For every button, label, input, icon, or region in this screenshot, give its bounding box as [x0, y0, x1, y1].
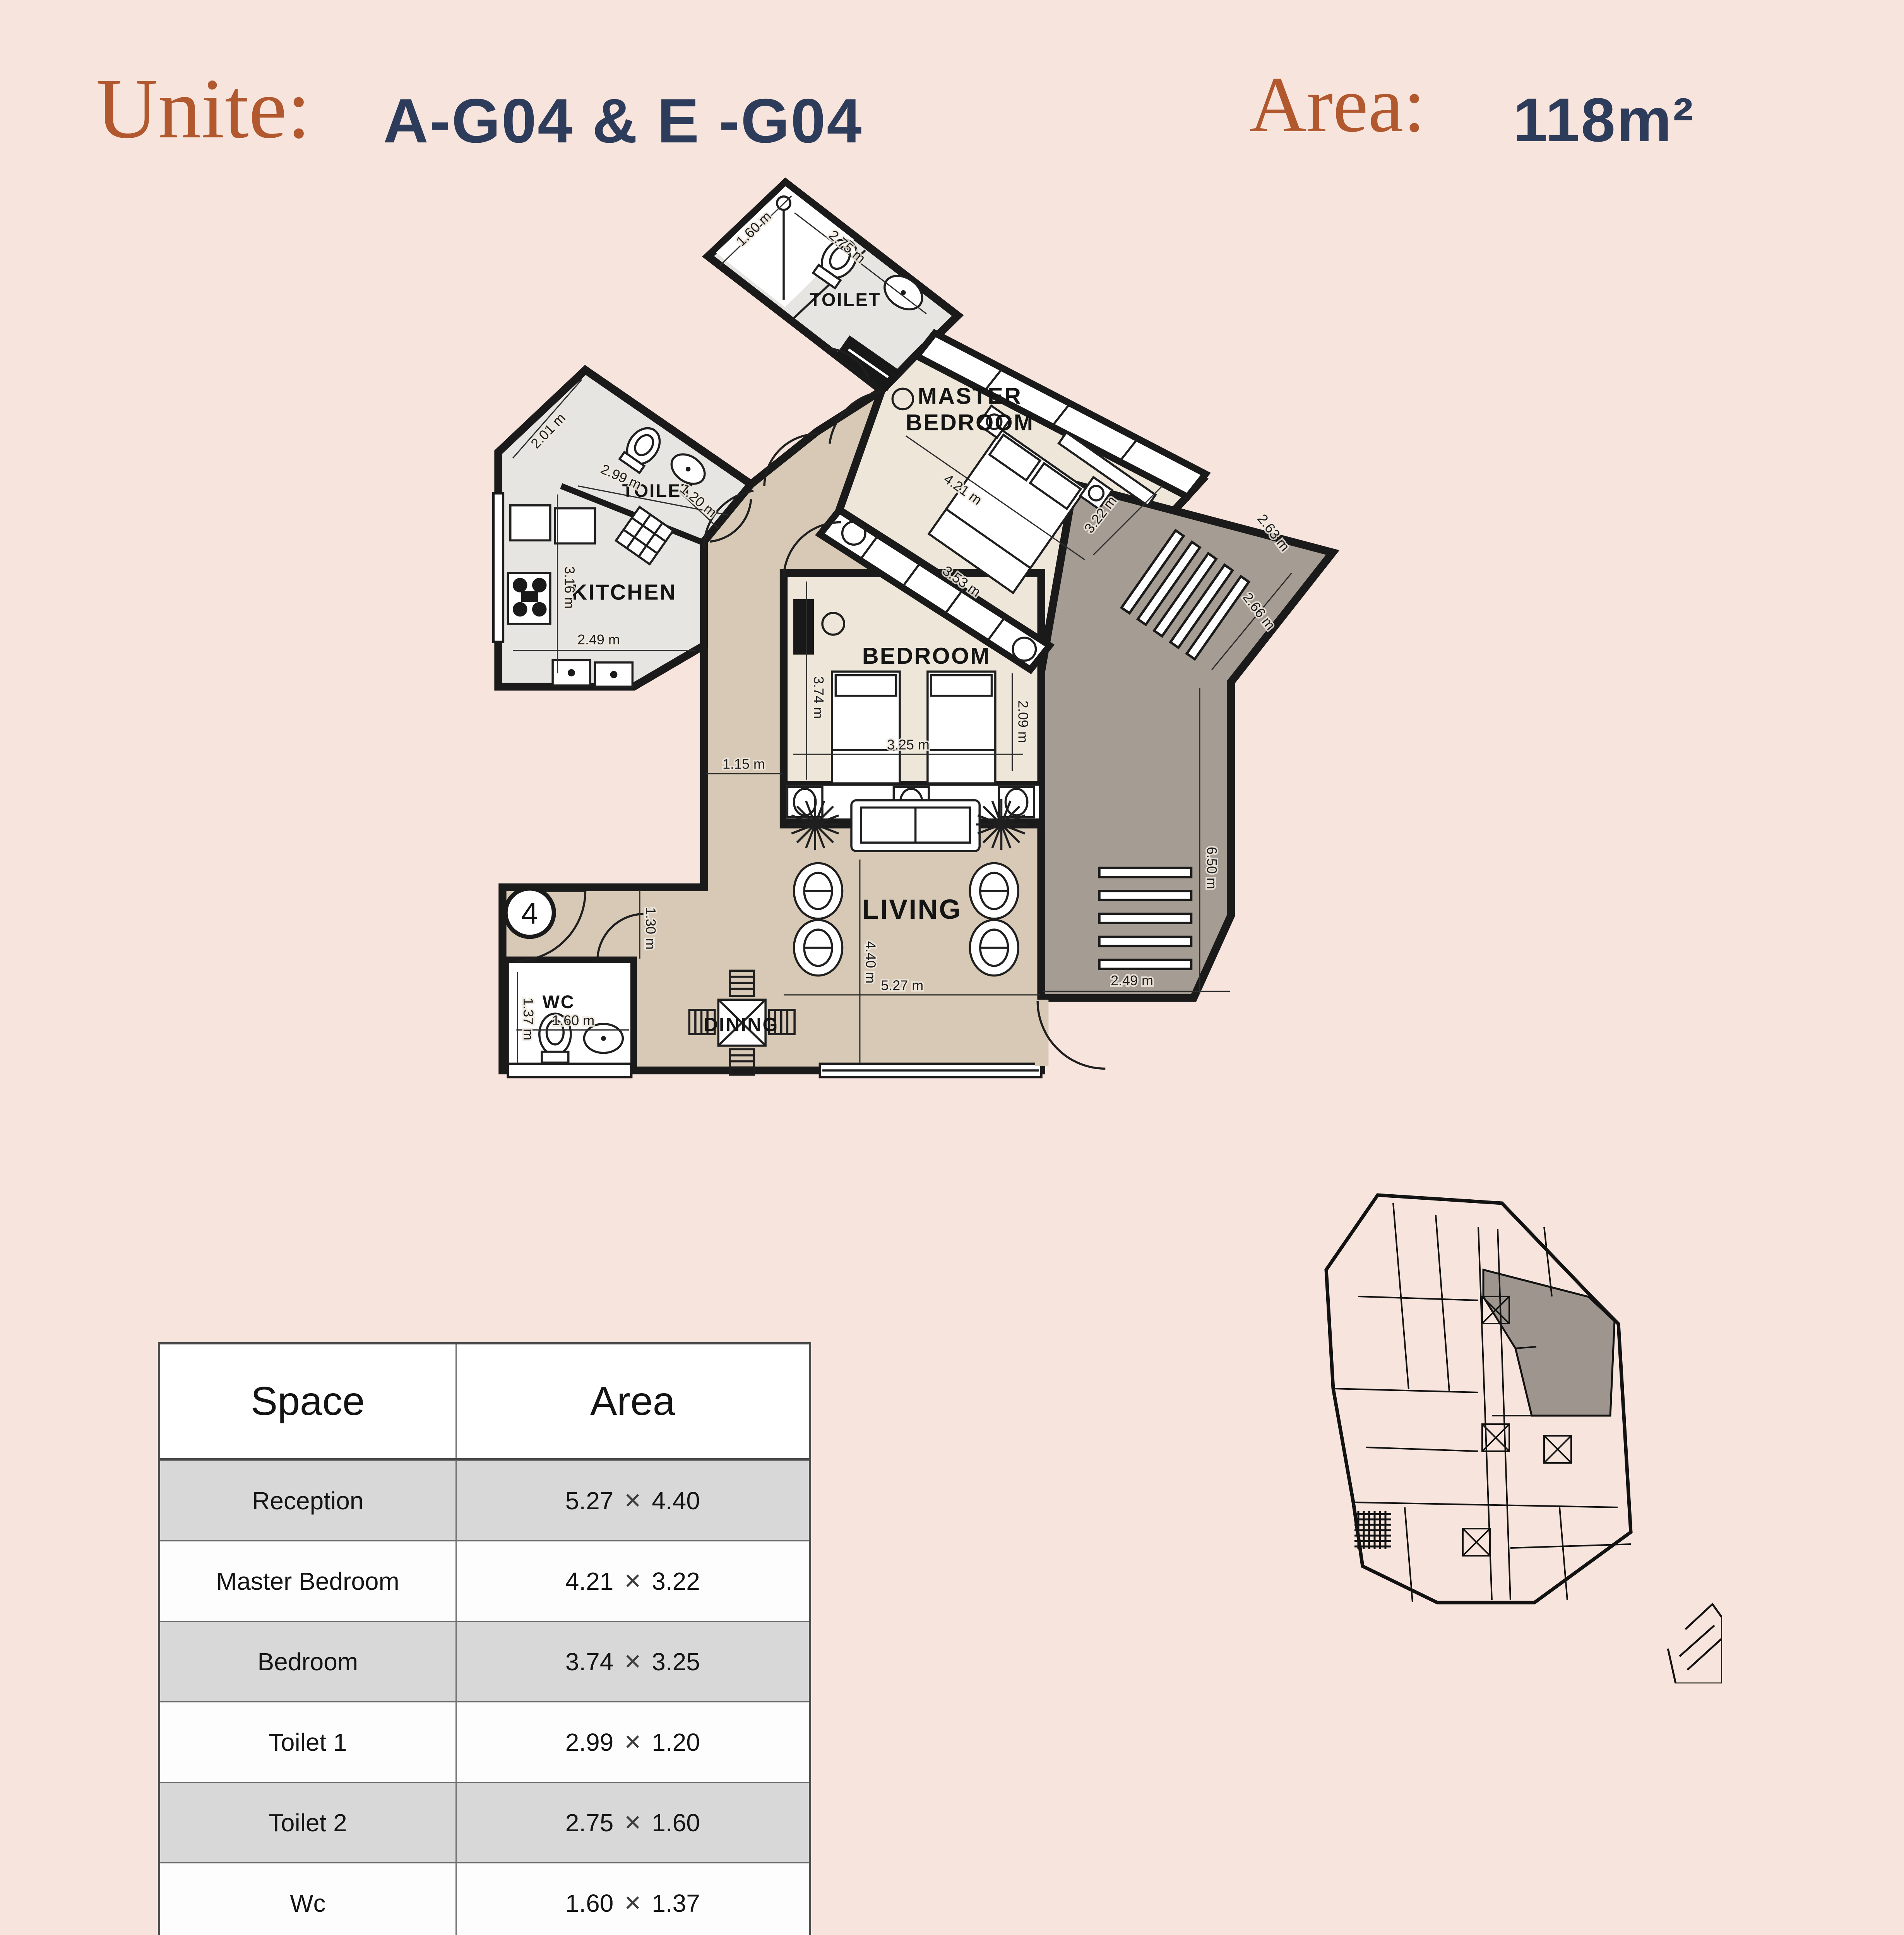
space-header: Space [160, 1344, 455, 1458]
kitchen-sink-right [555, 509, 595, 544]
dim-bedroom-d: 2.09 m [1015, 700, 1031, 743]
dim-living-d: 4.40 m [863, 941, 878, 984]
wc-window [508, 1064, 632, 1077]
dim-bedroom-l: 3.74 m [811, 676, 827, 719]
living-label: LIVING [862, 894, 962, 925]
area-cell: 3.74 ✕ 3.25 [455, 1622, 809, 1701]
table-row-reception: Reception 5.27 ✕ 4.40 [160, 1460, 809, 1540]
table-row-bedroom: Bedroom 3.74 ✕ 3.25 [160, 1621, 809, 1701]
multiply-icon: ✕ [623, 1488, 642, 1514]
dim-wc-w: 1.60 m [552, 1012, 594, 1028]
space-cell: Bedroom [160, 1622, 455, 1701]
floor-plan-drawing: 4 TOILET MA [445, 155, 1393, 1354]
master-bedroom-label-2: BEDROOM [906, 409, 1034, 435]
dim-hall-w: 1.15 m [723, 756, 765, 772]
master-bedroom-label-1: MASTER [918, 383, 1022, 409]
dim-terrace-l: 6.50 m [1204, 847, 1220, 889]
multiply-icon: ✕ [623, 1569, 642, 1594]
unit-title-value: A-G04 & E -G04 [383, 90, 863, 152]
dim-bedroom-w: 3.25 m [887, 737, 930, 753]
space-cell: Toilet 1 [160, 1702, 455, 1782]
space-cell: Wc [160, 1863, 455, 1935]
kitchen-sink-left [510, 505, 550, 541]
entrance-number: 4 [521, 896, 538, 930]
table-row-toilet-2: Toilet 2 2.75 ✕ 1.60 [160, 1782, 809, 1862]
area-title-value: 118m² [1513, 89, 1695, 151]
dim-wc-d: 1.37 m [521, 998, 536, 1040]
bedroom-label: BEDROOM [862, 643, 991, 669]
space-cell: Master Bedroom [160, 1541, 455, 1621]
dim-kitchen-l: 3.16 m [562, 566, 577, 609]
dim-living-w: 5.27 m [881, 977, 923, 993]
floor-plan-page: { "header": { "unit_label": "Unite:", "u… [0, 0, 1904, 1935]
toilet2-label: TOILET [810, 289, 881, 310]
area-title-label: Area: [1249, 65, 1425, 144]
adjacent-building-fragment [1668, 1604, 1722, 1683]
wc-label: WC [543, 992, 575, 1012]
table-row-master-bedroom: Master Bedroom 4.21 ✕ 3.22 [160, 1540, 809, 1621]
kitchen-label: KITCHEN [572, 580, 677, 604]
space-area-table: Space Area Reception 5.27 ✕ 4.40 Master … [158, 1342, 811, 1935]
area-cell: 2.75 ✕ 1.60 [455, 1783, 809, 1862]
multiply-icon: ✕ [623, 1890, 642, 1916]
dim-kitchen-w: 2.49 m [577, 632, 620, 647]
dim-corridor-w: 1.30 m [643, 907, 659, 950]
area-cell: 1.60 ✕ 1.37 [455, 1863, 809, 1935]
plant-icon [790, 799, 841, 850]
wc-sink-icon [584, 1024, 623, 1053]
space-cell: Toilet 2 [160, 1783, 455, 1862]
multiply-icon: ✕ [623, 1810, 642, 1836]
multiply-icon: ✕ [623, 1730, 642, 1755]
table-row-wc: Wc 1.60 ✕ 1.37 [160, 1862, 809, 1935]
kitchen-window [493, 493, 503, 642]
area-header: Area [455, 1344, 809, 1458]
building-key-plan [1296, 1180, 1722, 1683]
space-cell: Reception [160, 1461, 455, 1540]
table-header-row: Space Area [160, 1344, 809, 1460]
area-cell: 2.99 ✕ 1.20 [455, 1702, 809, 1782]
unit-title-label: Unite: [96, 66, 311, 152]
area-cell: 5.27 ✕ 4.40 [455, 1461, 809, 1540]
table-row-toilet-1: Toilet 1 2.99 ✕ 1.20 [160, 1701, 809, 1782]
dining-label: DINING [704, 1014, 779, 1035]
plant-icon [976, 799, 1027, 850]
multiply-icon: ✕ [623, 1649, 642, 1675]
bedroom-dresser [793, 599, 814, 655]
area-cell: 4.21 ✕ 3.22 [455, 1541, 809, 1621]
dim-terrace-w: 2.49 m [1111, 973, 1153, 988]
